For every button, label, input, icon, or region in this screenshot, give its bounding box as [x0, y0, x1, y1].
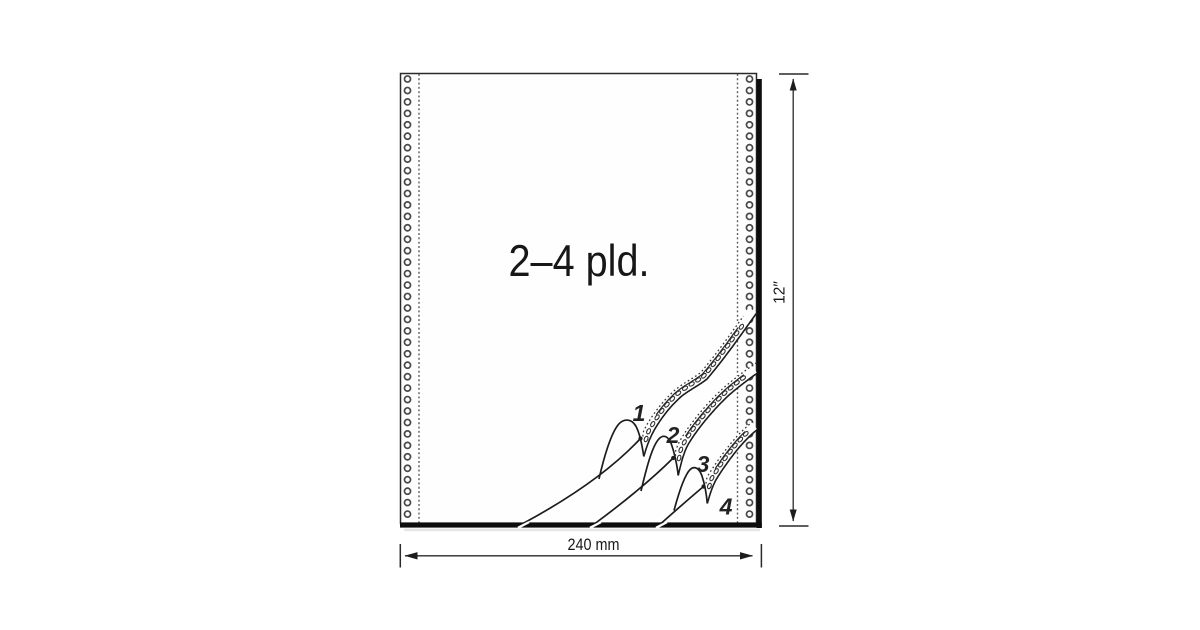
svg-text:4: 4 [719, 494, 733, 520]
svg-text:12″: 12″ [772, 281, 789, 304]
svg-text:1: 1 [633, 400, 646, 426]
svg-text:3: 3 [697, 451, 710, 477]
svg-text:240 mm: 240 mm [568, 536, 620, 554]
svg-text:2: 2 [666, 422, 680, 448]
svg-text:2–4 pld.: 2–4 pld. [509, 237, 650, 286]
